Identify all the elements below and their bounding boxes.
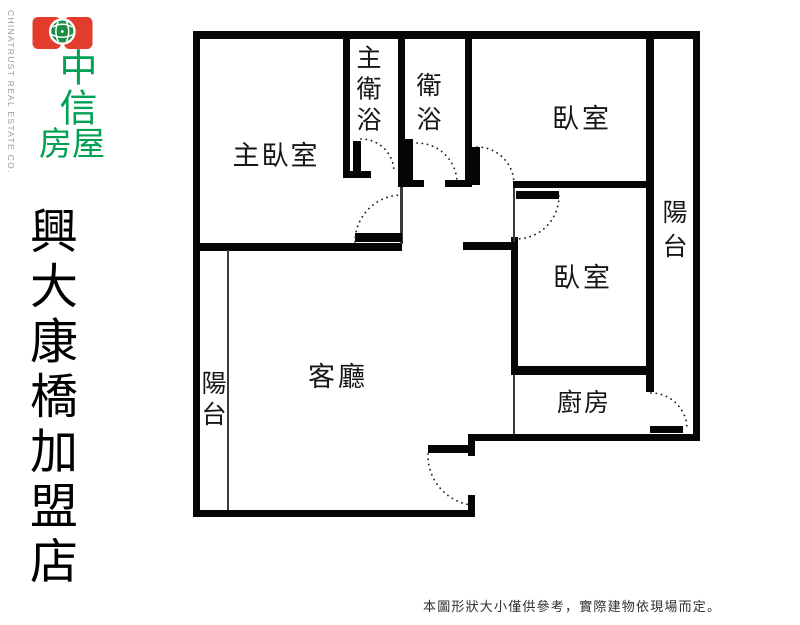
- door-arc-bedroom-middle: [516, 196, 559, 239]
- wall-livingroom-top: [193, 243, 402, 251]
- wall-living-bedroommiddle: [511, 237, 518, 373]
- room-label-living-room: 客廳: [308, 362, 368, 392]
- room-label-bedroom-top: 臥室: [552, 104, 612, 134]
- wall-balcony-right-divider: [646, 31, 654, 392]
- door-panel-bedroom-top: [472, 147, 480, 185]
- wall-bathroom-bedroomtop: [465, 31, 472, 187]
- room-label-bedroom-middle: 臥室: [553, 263, 613, 293]
- wall-masterbed-masterbath: [343, 31, 350, 178]
- wall-bottom-kitchen-strip: [468, 434, 700, 441]
- wall-masterbath-bathroom: [398, 31, 405, 187]
- wall-left: [193, 31, 200, 517]
- door-panel-entrance: [428, 445, 472, 453]
- wall-right: [693, 31, 700, 441]
- wall-bathroom-bottom-left: [398, 180, 424, 187]
- door-panel-bathroom: [405, 139, 413, 181]
- wall-bedroommiddle-kitchen: [511, 366, 654, 375]
- room-label-kitchen: 廚房: [557, 389, 611, 417]
- room-label-master-bedroom: 主臥室: [233, 141, 320, 171]
- door-arc-bathroom: [417, 143, 457, 183]
- wall-hall-bedroommiddle: [463, 242, 516, 250]
- door-panel-kitchen-balcony: [650, 426, 683, 433]
- door-arc-master-bathroom: [361, 139, 394, 172]
- room-label-bathroom: 衛浴: [413, 72, 441, 140]
- room-label-balcony-left: 陽台: [198, 370, 226, 432]
- outer-walls: [193, 31, 700, 517]
- door-arc-entrance: [428, 454, 471, 505]
- door-panel-master-bedroom: [355, 233, 402, 242]
- kitchen-open-boundary-line: [513, 375, 515, 434]
- wall-bottom: [193, 510, 475, 517]
- wall-bedroomtop-bottom: [513, 181, 650, 188]
- hallway-right-line: [513, 188, 515, 242]
- room-label-master-bathroom: 主衛浴: [353, 45, 381, 138]
- room-label-balcony-right: 陽台: [659, 199, 687, 267]
- floorplan-drawing: [0, 0, 800, 625]
- door-arc-bedroom-top: [477, 147, 514, 184]
- balcony-left-boundary-line: [227, 250, 229, 510]
- wall-top: [193, 31, 700, 39]
- door-panel-bedroom-middle: [516, 191, 559, 199]
- disclaimer-text: 本圖形狀大小僅供參考，實際建物依現場而定。: [423, 596, 721, 615]
- door-panel-master-bathroom: [353, 141, 361, 173]
- floorplan-page: CHINATRUST REAL ESTATE CO. 中信 房屋 興大康橋加盟店: [0, 0, 800, 625]
- door-arc-kitchen-balcony: [651, 393, 687, 429]
